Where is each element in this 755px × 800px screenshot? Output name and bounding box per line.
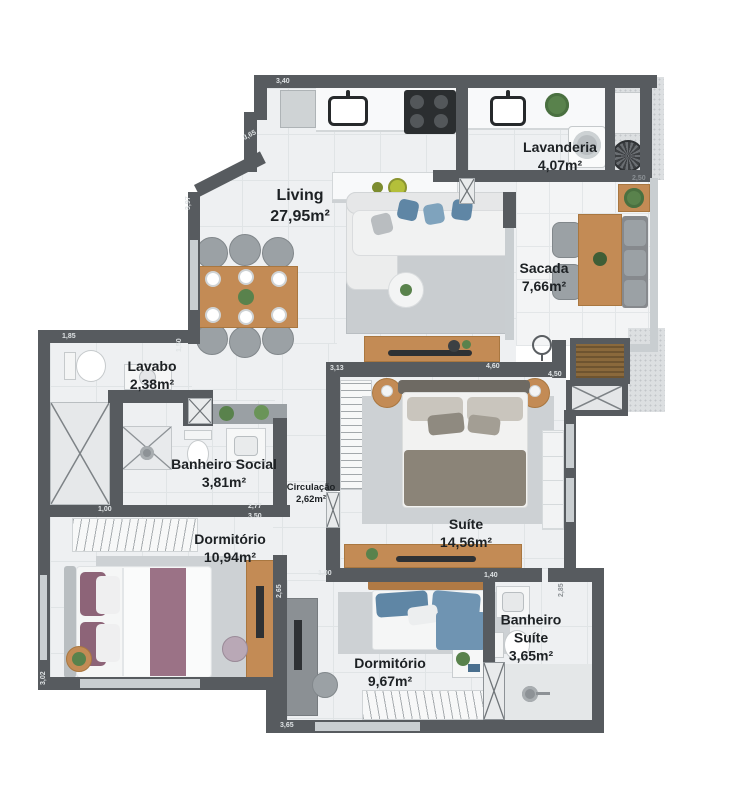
suite-console-plant [366, 548, 378, 560]
fridge [280, 90, 316, 128]
place-setting [238, 309, 254, 325]
door-lavanderia [459, 178, 475, 204]
dorm2-blanket [436, 612, 486, 650]
dim-label: 4,50 [548, 371, 562, 378]
label-sacada: Sacada 7,66m² [519, 259, 568, 295]
dorm1-monitor [256, 586, 264, 638]
room-name: Lavabo [127, 357, 176, 375]
room-area: 2,38m² [127, 375, 176, 393]
dim-label: 4,60 [486, 363, 500, 370]
room-name: Suíte [501, 629, 562, 647]
lavabo-toilet-tank [64, 352, 76, 380]
ceiling-fan-symbol [532, 335, 552, 355]
shelf-plant [254, 405, 269, 420]
shaft-box-left [50, 402, 110, 505]
room-area: 10,94m² [194, 548, 266, 566]
shower-door-banheiro-suite [483, 662, 505, 720]
place-setting [205, 307, 221, 323]
stove-burner [410, 95, 424, 109]
room-name: Sacada [519, 259, 568, 277]
ac-grille-box [570, 338, 630, 384]
kitchen-faucet [346, 90, 350, 98]
dining-chair [229, 326, 261, 358]
dorm1-plant [72, 652, 86, 666]
dorm1-pillow-white [96, 576, 120, 614]
room-name: Dormitório [194, 530, 266, 548]
suite-pillow [427, 412, 465, 436]
plant-table [593, 252, 607, 266]
tech-cabinet [612, 92, 642, 134]
railing-sacada-bottom [630, 344, 658, 352]
wall-top [254, 75, 657, 88]
dining-chair [262, 237, 294, 269]
lamp-left [381, 385, 393, 397]
label-lavabo: Lavabo 2,38m² [127, 357, 176, 393]
centerpiece-plant [238, 289, 254, 305]
dim-label: 1,00 [98, 506, 112, 513]
room-area: 27,95m² [270, 207, 330, 228]
stove-burner [434, 114, 448, 128]
wall-banheiro-suite-right [592, 568, 604, 733]
room-area: 7,66m² [519, 277, 568, 295]
kitchen-sink [328, 96, 368, 126]
room-area: 2,62m² [287, 494, 336, 506]
window-suite-right-1 [566, 424, 574, 468]
label-circulacao: Circulação 2,62m² [287, 482, 336, 506]
window-dorm1-left [40, 575, 47, 660]
label-suite: Suíte 14,56m² [440, 515, 492, 551]
stove-burner [434, 95, 448, 109]
dim-label: 2,85 [558, 583, 565, 597]
shaft-box-right [566, 380, 628, 416]
room-area: 9,67m² [354, 672, 426, 690]
room-area: 14,56m² [440, 533, 492, 551]
coffee-table-plant [400, 284, 412, 296]
room-name: Banheiro Social [171, 455, 277, 473]
dim-label: 3,13 [330, 365, 344, 372]
room-name: Living [270, 186, 330, 207]
bsuite-shower-arm [536, 692, 550, 695]
place-setting [205, 271, 221, 287]
wall-living-sacada [503, 192, 516, 228]
wall-dorm-divider [273, 555, 287, 733]
wall-banheiro-suite-divider [483, 568, 495, 662]
dorm1-wardrobe [72, 518, 198, 552]
suite-tv [396, 556, 476, 562]
suite-pillow [467, 414, 501, 436]
sofa-pillow [422, 202, 445, 225]
glass-door-sacada [505, 228, 514, 340]
window-suite-right-2 [566, 478, 574, 522]
console-decor [448, 340, 460, 352]
room-area: 3,65m² [501, 647, 562, 665]
dim-label: 1,00 [318, 570, 332, 577]
plant-laundry [545, 93, 569, 117]
stove-burner [410, 114, 424, 128]
place-setting [271, 307, 287, 323]
room-name: Lavanderia [523, 138, 597, 156]
shelf-plant [219, 406, 234, 421]
ceiling-fan-stem [541, 353, 543, 361]
lamp-right [529, 385, 541, 397]
dorm2-monitor [294, 620, 302, 670]
label-dormitorio-2: Dormitório 9,67m² [354, 654, 426, 690]
console-plant [462, 340, 471, 349]
sofa-pillow [396, 198, 420, 222]
room-name: Circulação [287, 482, 336, 494]
dorm2-books [468, 664, 480, 672]
laundry-faucet [506, 90, 510, 98]
wall-shaft-right [110, 390, 123, 507]
shaft-x-pattern [572, 386, 622, 410]
dim-label: 3,50 [248, 513, 262, 520]
dim-label: 1,50 [176, 338, 183, 352]
dorm1-chair [222, 636, 248, 662]
dorm1-pillow-white [96, 624, 120, 662]
concrete-strip-right [628, 328, 665, 412]
dim-label: 2,77 [248, 503, 262, 510]
dim-label: 2,50 [632, 175, 646, 182]
door-banheiro-social [188, 398, 212, 424]
wall-suite-top [326, 362, 552, 377]
window-left-wall [190, 240, 198, 310]
suite-duvet [404, 450, 526, 506]
bench-cushion [624, 280, 646, 306]
place-setting [271, 271, 287, 287]
floor-plan: Living 27,95m² Lavanderia 4,07m² Sacada … [0, 0, 755, 800]
tv-console-living [364, 336, 500, 362]
dining-chair [196, 237, 228, 269]
dim-label: 3,02 [40, 671, 47, 685]
place-setting [238, 269, 254, 285]
dorm2-chair [312, 672, 338, 698]
wall-right-top [640, 75, 652, 182]
shower-head [140, 446, 154, 460]
label-dormitorio-1: Dormitório 10,94m² [194, 530, 266, 566]
bsuite-basin [502, 592, 524, 612]
wall-suite-bottom [326, 568, 542, 582]
railing-sacada-right [650, 178, 658, 350]
label-lavanderia: Lavanderia 4,07m² [523, 138, 597, 174]
dining-chair [229, 234, 261, 266]
laundry-counter [468, 88, 605, 130]
dim-label: 1,85 [62, 333, 76, 340]
toilet-tank-social [184, 430, 212, 440]
laundry-sink [490, 96, 526, 126]
concrete-strip-top-right [652, 77, 664, 180]
bench-cushion [624, 220, 646, 246]
dorm2-wardrobe [362, 690, 486, 720]
basin-social [234, 436, 258, 456]
shaft-x-pattern [51, 403, 109, 504]
dim-label: 1,40 [484, 572, 498, 579]
label-banheiro-suite: Banheiro Suíte 3,65m² [501, 611, 562, 666]
dim-label: 3,65 [280, 722, 294, 729]
window-dorm2-bottom [315, 722, 420, 731]
dorm1-runner [150, 568, 186, 676]
suite-closet-right [542, 430, 564, 530]
dim-label: 3,40 [276, 78, 290, 85]
lavabo-toilet-bowl [76, 350, 106, 382]
room-name: Suíte [440, 515, 492, 533]
wall-banheiro-suite-top [548, 568, 604, 582]
soundbar [388, 350, 472, 356]
window-dorm1-bottom [80, 679, 200, 688]
label-living: Living 27,95m² [270, 186, 330, 228]
wall-lavanderia-tech [605, 88, 615, 172]
dim-label: 3,97 [185, 196, 192, 210]
room-area: 4,07m² [523, 156, 597, 174]
wall-kitchen-lavanderia [456, 88, 468, 172]
room-name: Banheiro [501, 611, 562, 629]
room-area: 3,81m² [171, 473, 277, 491]
wall-suite-left-upper [326, 377, 340, 491]
room-name: Dormitório [354, 654, 426, 672]
plant-balcony [624, 188, 644, 208]
dim-label: 2,65 [276, 584, 283, 598]
bench-cushion [624, 250, 646, 276]
label-banheiro-social: Banheiro Social 3,81m² [171, 455, 277, 491]
